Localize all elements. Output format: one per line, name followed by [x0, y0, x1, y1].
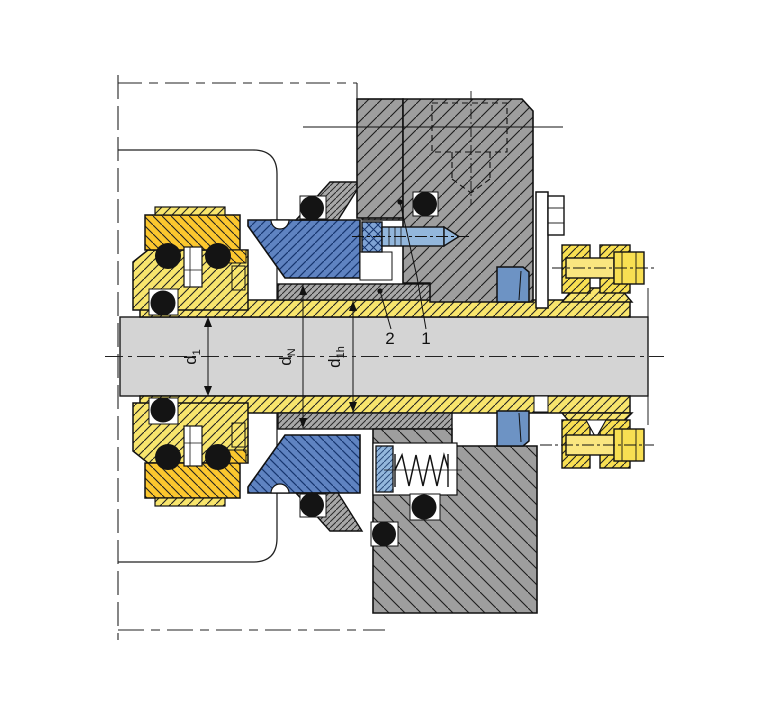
dimension-label-dN: dN [276, 348, 298, 365]
callout-1: 1 [421, 329, 430, 349]
grub-screw [184, 247, 202, 287]
o-ring [372, 522, 396, 546]
drawing-canvas [0, 0, 768, 716]
rotating-seal-ring-bottom [248, 435, 360, 493]
drive-collar-bottom [133, 398, 248, 507]
rotating-seal-ring-top [248, 220, 360, 278]
o-ring [412, 495, 437, 520]
flange-plate [536, 192, 564, 308]
seal-cross-section-figure: d1 dN d1h 2 1 [0, 0, 768, 716]
drive-collar-top [133, 207, 248, 316]
dimension-label-d1h: d1h [325, 346, 347, 368]
housing-bottom [373, 429, 537, 613]
o-ring [300, 196, 324, 220]
clamp-wedge-bottom [497, 411, 529, 446]
o-ring [155, 243, 181, 269]
hex-bolt-head [548, 196, 564, 235]
o-ring [205, 444, 231, 470]
callout-2: 2 [385, 329, 394, 349]
o-ring [151, 398, 176, 423]
dimension-label-d1: d1 [181, 349, 203, 365]
o-ring [205, 243, 231, 269]
o-ring [413, 192, 437, 216]
grub-screw [184, 426, 202, 466]
o-ring [155, 444, 181, 470]
collar-bolt-bottom [540, 413, 654, 468]
o-ring [151, 291, 176, 316]
clamp-wedge-top [497, 267, 529, 302]
o-ring [300, 493, 324, 517]
collar-bolt-top [552, 245, 654, 302]
